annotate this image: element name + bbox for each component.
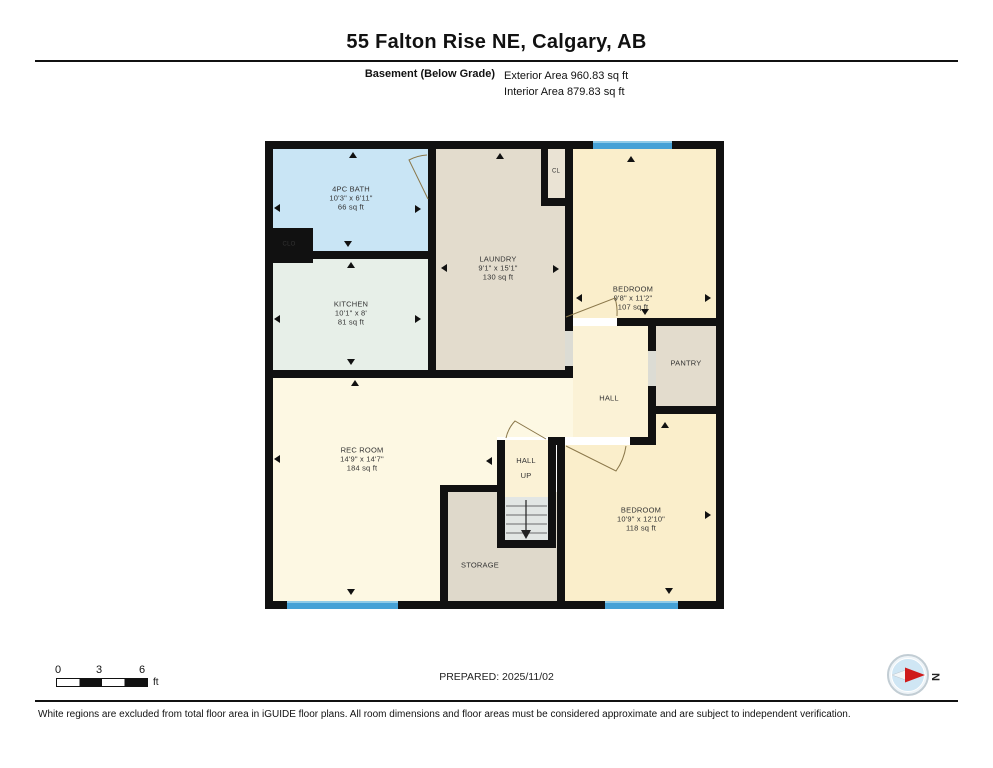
wall-segment bbox=[548, 440, 556, 548]
direction-arrow-icon bbox=[553, 265, 559, 273]
direction-arrow-icon bbox=[347, 589, 355, 595]
wall-segment bbox=[630, 437, 656, 445]
direction-arrow-icon bbox=[349, 152, 357, 158]
direction-arrow-icon bbox=[274, 204, 280, 212]
door-opening bbox=[648, 351, 656, 386]
wall-segment bbox=[648, 406, 716, 414]
wall-segment bbox=[428, 149, 436, 370]
page-title: 55 Falton Rise NE, Calgary, AB bbox=[0, 31, 993, 54]
room-label-storage: STORAGE bbox=[461, 561, 499, 570]
compass-icon: N bbox=[886, 653, 950, 697]
room-label-hall: HALL bbox=[599, 394, 619, 403]
floorplan: 4PC BATH 10'3" x 6'11" 66 sq ft KITCHEN … bbox=[265, 141, 724, 609]
window bbox=[605, 601, 678, 609]
direction-arrow-icon bbox=[274, 315, 280, 323]
wall-segment bbox=[565, 366, 573, 370]
room-label-bedroom2: BEDROOM 10'9" x 12'10" 118 sq ft bbox=[617, 506, 665, 533]
room-label-bath: 4PC BATH 10'3" x 6'11" 66 sq ft bbox=[329, 185, 372, 212]
wall-segment bbox=[648, 326, 656, 351]
direction-arrow-icon bbox=[351, 380, 359, 386]
room-label-bedroom1: BEDROOM 9'8" x 11'2" 107 sq ft bbox=[613, 285, 653, 312]
direction-arrow-icon bbox=[665, 588, 673, 594]
door-opening bbox=[565, 331, 573, 366]
wall-segment bbox=[716, 141, 724, 609]
wall-segment bbox=[557, 437, 565, 601]
floor-summary: Basement (Below Grade) Exterior Area 960… bbox=[0, 68, 993, 100]
direction-arrow-icon bbox=[347, 262, 355, 268]
exterior-area: Exterior Area 960.83 sq ft bbox=[504, 68, 628, 84]
wall-segment bbox=[265, 370, 573, 378]
direction-arrow-icon bbox=[441, 264, 447, 272]
wall-segment bbox=[648, 386, 656, 406]
direction-arrow-icon bbox=[415, 315, 421, 323]
interior-area: Interior Area 879.83 sq ft bbox=[504, 84, 628, 100]
room-area bbox=[505, 497, 548, 540]
direction-arrow-icon bbox=[705, 294, 711, 302]
direction-arrow-icon bbox=[274, 455, 280, 463]
title-divider bbox=[35, 60, 958, 62]
wall-segment bbox=[497, 440, 505, 548]
room-label-kitchen: KITCHEN 10'1" x 8' 81 sq ft bbox=[334, 300, 368, 327]
room-label-recroom: REC ROOM 14'9" x 14'7" 184 sq ft bbox=[340, 446, 384, 473]
direction-arrow-icon bbox=[344, 241, 352, 247]
prepared-date: PREPARED: 2025/11/02 bbox=[0, 671, 993, 683]
direction-arrow-icon bbox=[486, 457, 492, 465]
floor-label: Basement (Below Grade) bbox=[365, 68, 495, 100]
window bbox=[287, 601, 398, 609]
closet-label-clo: CLO bbox=[283, 242, 296, 249]
direction-arrow-icon bbox=[661, 422, 669, 428]
wall-segment bbox=[307, 251, 436, 259]
disclaimer-text: White regions are excluded from total fl… bbox=[38, 709, 851, 720]
wall-segment bbox=[440, 485, 448, 601]
window bbox=[593, 141, 672, 149]
direction-arrow-icon bbox=[415, 205, 421, 213]
wall-segment bbox=[565, 149, 573, 331]
direction-arrow-icon bbox=[347, 359, 355, 365]
direction-arrow-icon bbox=[557, 510, 563, 518]
closet-label-cl: CL bbox=[552, 169, 560, 176]
wall-segment bbox=[440, 485, 497, 492]
room-area bbox=[656, 414, 716, 445]
room-area bbox=[273, 437, 497, 485]
wall-segment bbox=[617, 318, 716, 326]
footer-divider bbox=[35, 700, 958, 702]
direction-arrow-icon bbox=[705, 511, 711, 519]
compass-north-label: N bbox=[929, 673, 941, 681]
room-label-pantry: PANTRY bbox=[671, 359, 702, 368]
direction-arrow-icon bbox=[496, 153, 504, 159]
room-area bbox=[273, 485, 440, 601]
room-label-hall-up: HALL UP bbox=[516, 453, 536, 483]
direction-arrow-icon bbox=[576, 294, 582, 302]
room-area bbox=[273, 378, 573, 437]
room-label-laundry: LAUNDRY 9'1" x 15'1" 130 sq ft bbox=[478, 255, 517, 282]
direction-arrow-icon bbox=[627, 156, 635, 162]
wall-segment bbox=[497, 540, 556, 548]
room-area bbox=[573, 326, 648, 437]
